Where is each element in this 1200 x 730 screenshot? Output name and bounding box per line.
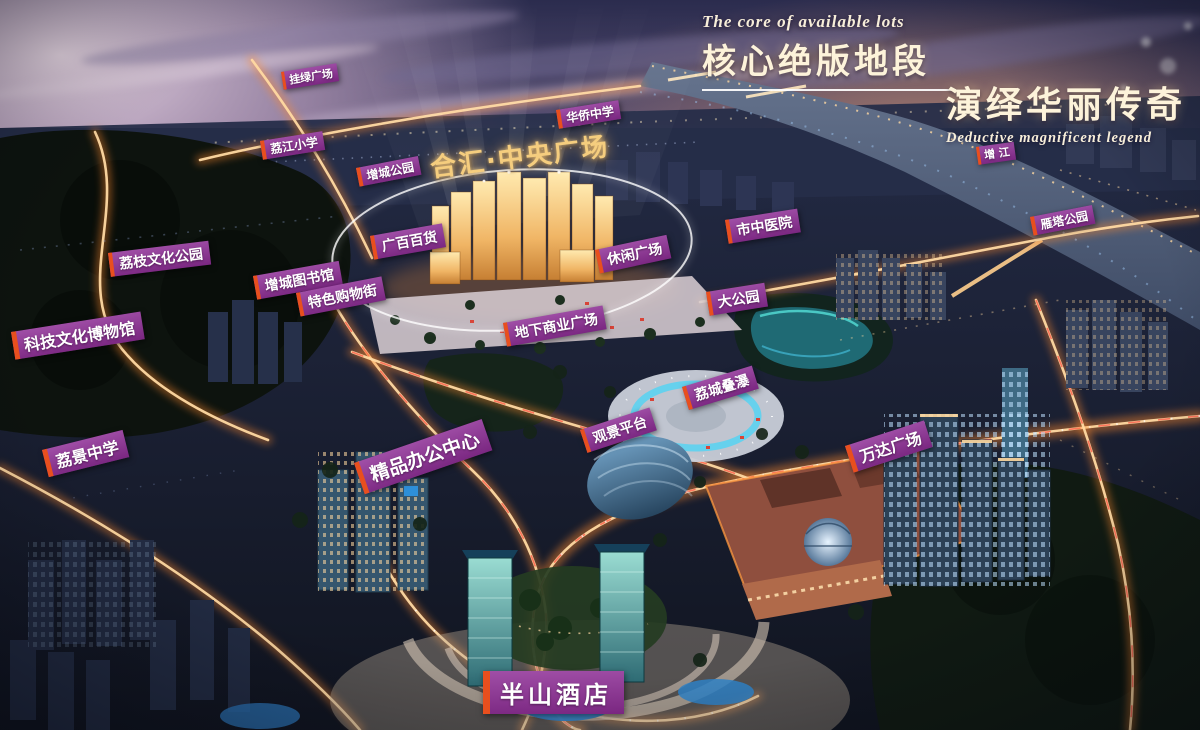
label-accent-bar <box>483 671 490 714</box>
label-text: 半山酒店 <box>500 671 624 714</box>
tagline-en-top: The core of available lots <box>702 12 956 32</box>
headline-secondary: 演绎华丽传奇 <box>946 76 1186 128</box>
aerial-masterplan-render: .roadGlow{stroke:#ff8a2e;stroke-width:9;… <box>0 0 1200 730</box>
map-label: 半山酒店 <box>483 671 624 714</box>
tagline-en-bottom: Deductive magnificent legend <box>946 130 1186 147</box>
headline-primary: 核心绝版地段 <box>702 32 956 91</box>
hero-tagline-block: The core of available lots 核心绝版地段 <box>702 12 956 91</box>
hero-tagline-block-2: 演绎华丽传奇 Deductive magnificent legend <box>946 76 1186 147</box>
